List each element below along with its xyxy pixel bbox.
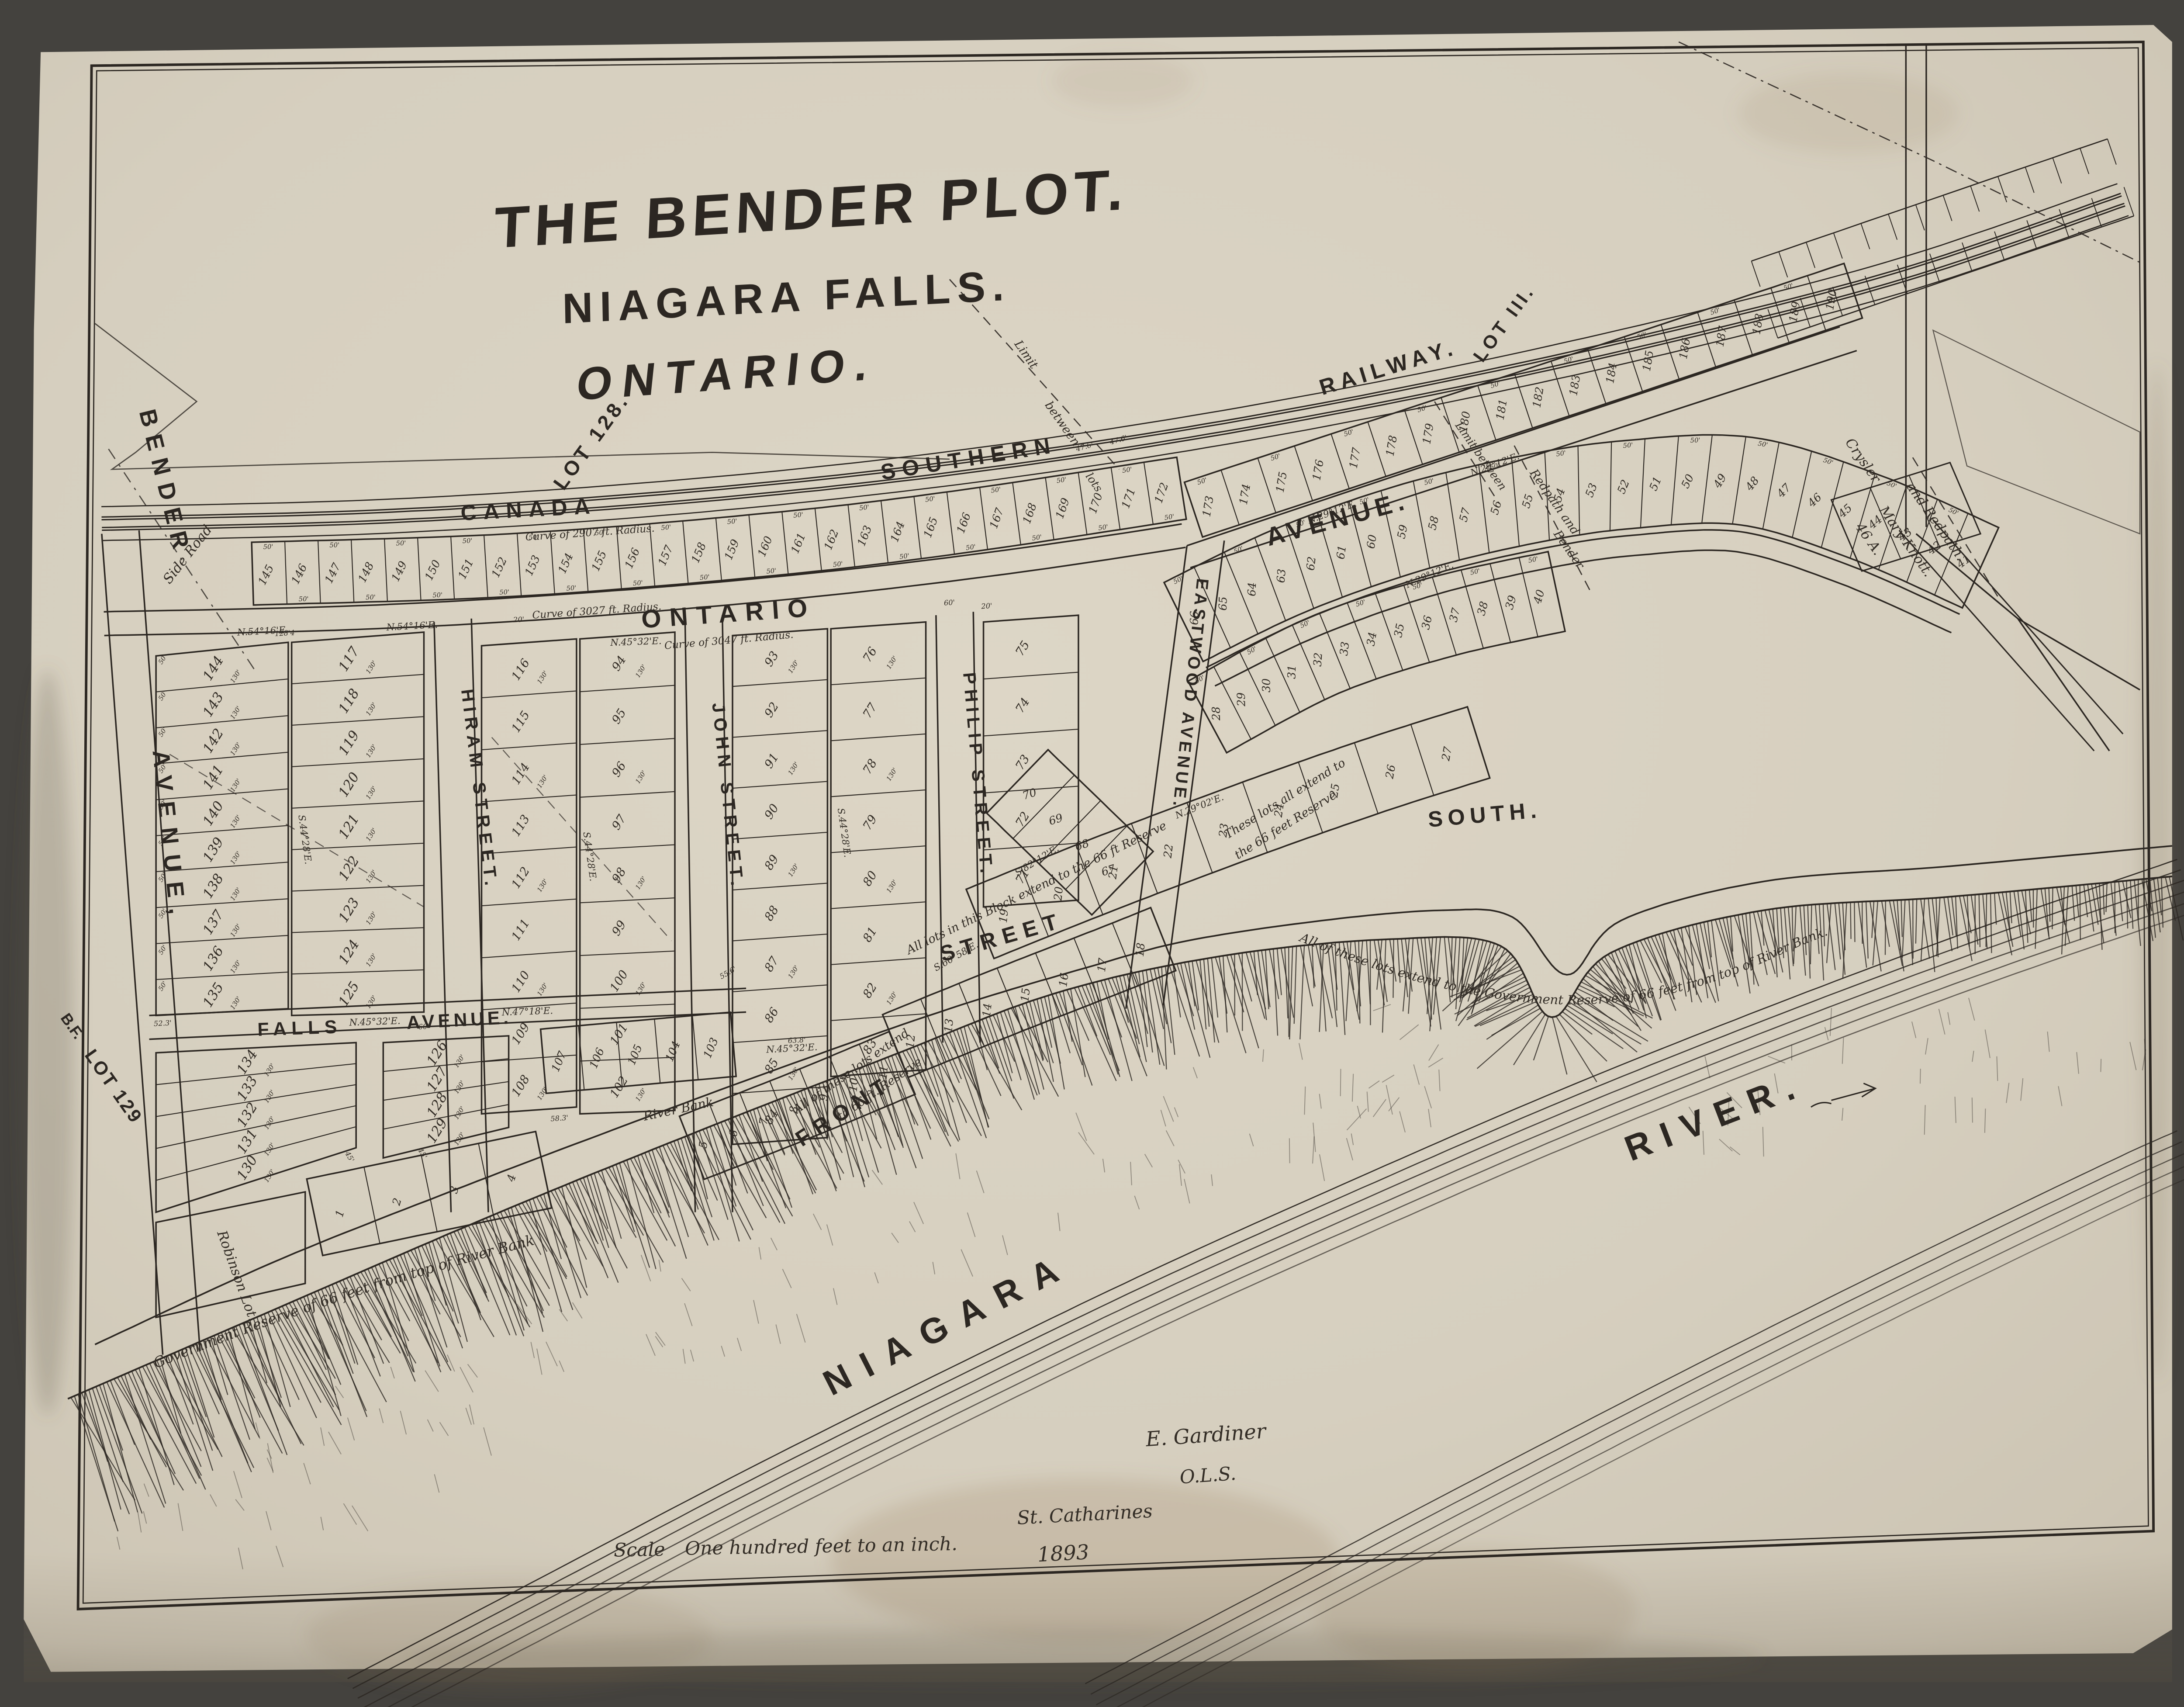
dimension-label: 50' bbox=[1690, 436, 1700, 444]
lot-number: 34 bbox=[1364, 631, 1379, 647]
dimension-label: 50' bbox=[766, 567, 777, 575]
dimension-label: 60' bbox=[943, 598, 955, 607]
dimension-label: 50' bbox=[661, 523, 671, 532]
dimension-label: 50' bbox=[1056, 476, 1067, 485]
street-falls: FALLS bbox=[257, 1016, 342, 1040]
lot-number: 35 bbox=[1392, 622, 1407, 638]
dimension-label: 50' bbox=[263, 543, 273, 551]
dimension-label: 50' bbox=[727, 517, 737, 526]
dimension-label: 50' bbox=[396, 540, 406, 547]
dimension-label: 20' bbox=[981, 602, 992, 611]
dimension-label: 50' bbox=[632, 579, 643, 587]
dimension-label: 52.3' bbox=[154, 1018, 172, 1028]
bearing-n4532-1: N.45°32'E. bbox=[349, 1015, 401, 1028]
dimension-label: 50' bbox=[1623, 441, 1633, 450]
bearing-n4718: N.47°18'E. bbox=[501, 1005, 553, 1018]
lot-number: 30 bbox=[1260, 679, 1273, 692]
dimension-label: 50' bbox=[462, 537, 472, 545]
lot-number: 22 bbox=[1161, 843, 1175, 859]
dimension-label: 50' bbox=[965, 543, 976, 552]
dimension-label: 50' bbox=[793, 511, 803, 519]
photo-backdrop: 14550'14650'14750'14850'14950'15050'1515… bbox=[0, 0, 2184, 1707]
dimension-label: 20' bbox=[513, 615, 525, 624]
lot-number: 31 bbox=[1285, 665, 1298, 679]
dimension-label: 50' bbox=[499, 589, 510, 596]
dimension-label: 50' bbox=[833, 560, 843, 568]
signature-year: 1893 bbox=[1037, 1540, 1090, 1566]
lot-number: 28 bbox=[1209, 706, 1223, 721]
lot-number: 64 bbox=[1245, 582, 1258, 596]
dimension-label: 50' bbox=[1031, 533, 1042, 542]
lot-number: 63 bbox=[1274, 568, 1288, 583]
dimension-label: 50' bbox=[1164, 513, 1175, 522]
dimension-label: 50' bbox=[299, 596, 309, 603]
lot-number: 62 bbox=[1304, 556, 1318, 571]
lot-number: 18 bbox=[1133, 942, 1147, 957]
dimension-label: 50' bbox=[990, 486, 1001, 495]
dimension-label: 50' bbox=[366, 594, 376, 602]
dimension-label: 50' bbox=[566, 584, 577, 592]
dimension-label: 58.3' bbox=[550, 1114, 569, 1123]
dimension-label: 50' bbox=[925, 495, 936, 504]
lot-number: 29 bbox=[1235, 692, 1248, 707]
lot-number: 65 bbox=[1216, 596, 1230, 611]
lot-number: 32 bbox=[1311, 652, 1325, 667]
scale-word: Scale bbox=[614, 1539, 665, 1562]
lot-number: 15 bbox=[1018, 987, 1032, 1002]
map-canvas: 14550'14650'14750'14850'14950'15050'1515… bbox=[0, 0, 2184, 1707]
dimension-label: 50' bbox=[1098, 523, 1109, 532]
lot-number: 26 bbox=[1383, 764, 1398, 780]
bearing-n4532-2: N.45°32'E. bbox=[610, 636, 662, 648]
dimension-label: 50' bbox=[899, 552, 910, 561]
dimension-label: 50' bbox=[859, 503, 870, 512]
dimension-label: 50' bbox=[329, 541, 339, 549]
lot-number: 60 bbox=[1364, 533, 1379, 550]
signature-title: O.L.S. bbox=[1179, 1463, 1237, 1489]
lot-number: 33 bbox=[1337, 641, 1352, 656]
dimension-label: 50' bbox=[1122, 466, 1133, 474]
dimension-label: 50' bbox=[699, 573, 710, 582]
dimension-label: 50' bbox=[1555, 449, 1566, 458]
lot-number: 61 bbox=[1334, 544, 1348, 560]
dimension-label: 50' bbox=[432, 592, 442, 599]
